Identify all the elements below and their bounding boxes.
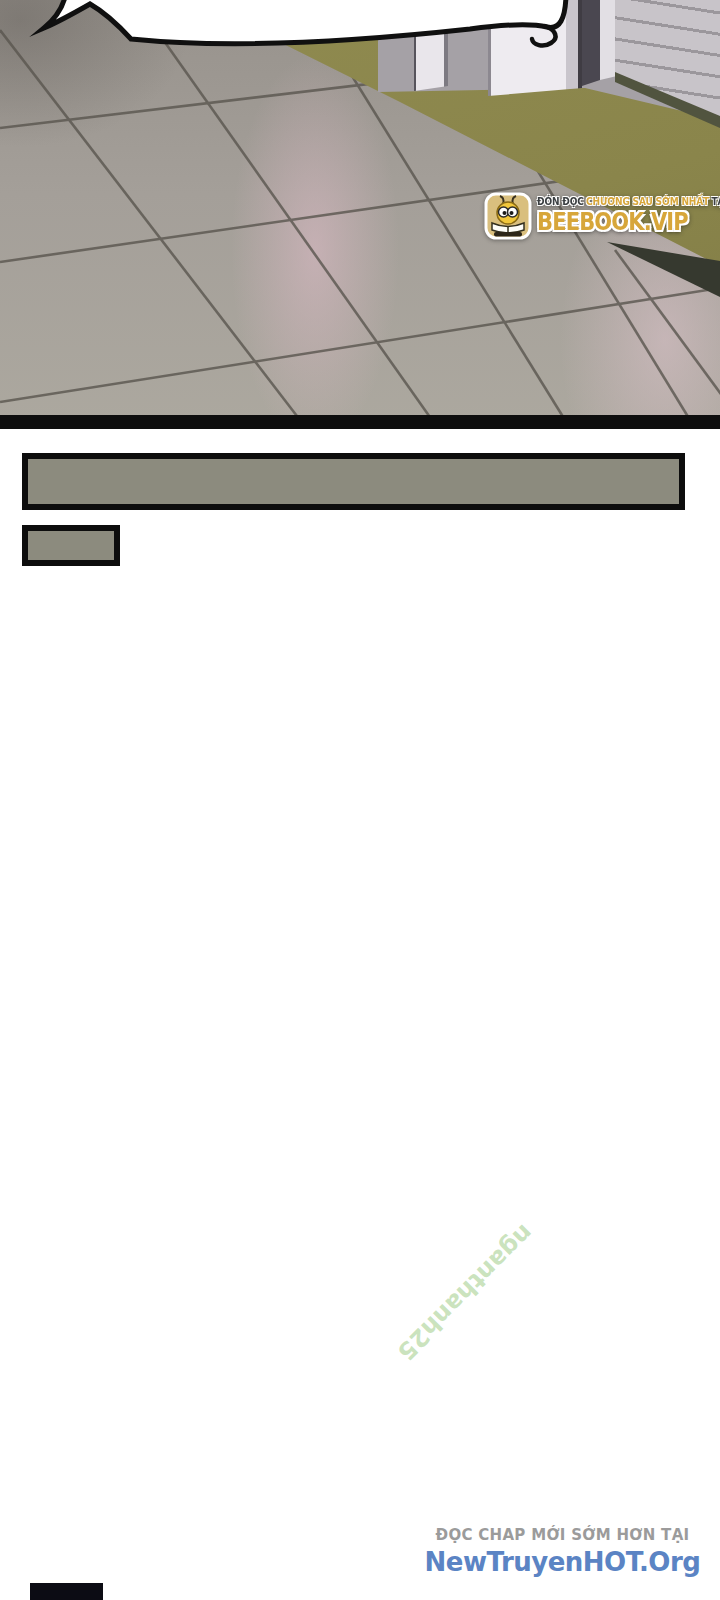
bee-mascot-icon: [484, 192, 532, 240]
caption-box-small: [22, 525, 120, 566]
promo-heading: ĐỌC CHAP MỚI SỚM HƠN TẠI: [390, 1526, 720, 1544]
comic-reader-page: ĐÓN ĐỌCCHƯƠNG SAU SỚM NHẤTTẠI BEEBOOK.VI…: [0, 0, 720, 1600]
comic-panel-image[interactable]: ĐÓN ĐỌCCHƯƠNG SAU SỚM NHẤTTẠI BEEBOOK.VI…: [0, 0, 720, 429]
beebook-watermark-badge[interactable]: ĐÓN ĐỌCCHƯƠNG SAU SỚM NHẤTTẠI BEEBOOK.VI…: [484, 187, 720, 245]
next-panel-edge: [30, 1583, 103, 1600]
panel-bottom-border: [0, 415, 720, 429]
speech-bubble: [0, 0, 720, 130]
badge-text-block: ĐÓN ĐỌCCHƯƠNG SAU SỚM NHẤTTẠI BEEBOOK.VI…: [537, 195, 720, 237]
speech-bubble-tail-curl: [532, 26, 556, 46]
speech-bubble-outline: [44, 0, 566, 44]
caption-box-large: [22, 453, 685, 510]
promo-site-link[interactable]: NewTruyenHOT.Org: [390, 1547, 720, 1577]
badge-tagline-highlight: CHƯƠNG SAU SỚM NHẤT: [586, 195, 709, 208]
uploader-watermark: nganthanh25: [402, 1219, 538, 1355]
badge-tagline-prefix: ĐÓN ĐỌC: [537, 195, 584, 208]
badge-brand-name: BEEBOOK.VIP: [537, 208, 720, 237]
badge-tagline-suffix: TẠI: [711, 195, 720, 208]
promo-block: ĐỌC CHAP MỚI SỚM HƠN TẠI NewTruyenHOT.Or…: [390, 1526, 720, 1577]
